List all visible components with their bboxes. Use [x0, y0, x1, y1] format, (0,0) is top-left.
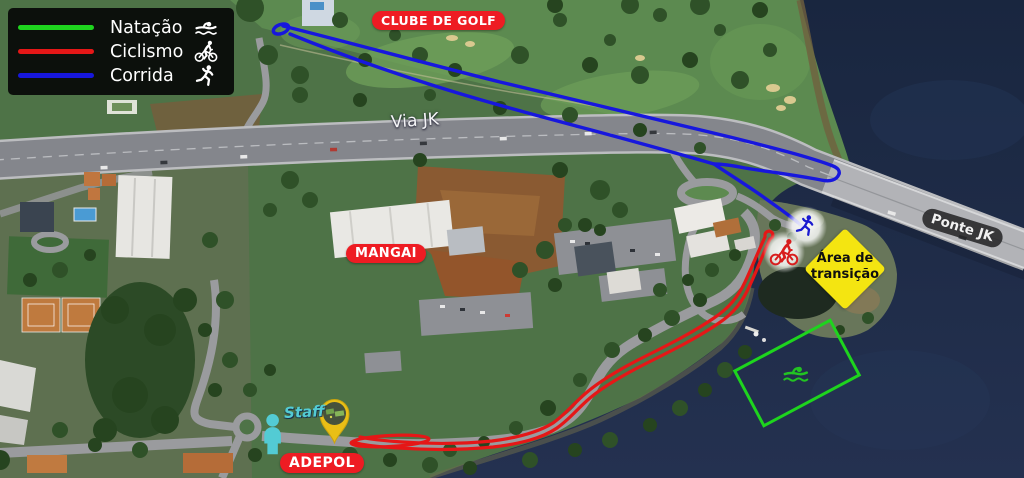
legend-label-natacao: Natação — [110, 18, 194, 38]
legend-label-corrida: Corrida — [110, 66, 194, 86]
legend-panel: Natação Ciclismo Corrida — [8, 8, 234, 95]
interchange-roundabout — [681, 182, 733, 204]
mangai-label: MANGAI — [346, 244, 426, 263]
clube-de-golf-label: CLUBE DE GOLF — [372, 11, 505, 30]
legend-row-ciclismo: Ciclismo — [18, 41, 222, 62]
cyclist-icon — [194, 40, 218, 64]
swim-route-swatch — [18, 25, 94, 30]
run-route-swatch — [18, 73, 94, 78]
transition-label-line1: Área de — [817, 251, 874, 266]
legend-row-corrida: Corrida — [18, 65, 222, 86]
transition-area-label: Área de transição — [799, 251, 891, 284]
legend-label-ciclismo: Ciclismo — [110, 42, 194, 62]
legend-row-natacao: Natação — [18, 17, 222, 38]
swimmer-icon — [194, 16, 218, 40]
runner-icon — [194, 64, 218, 88]
staff-label: Staff — [284, 402, 325, 422]
via-jk-label: Via JK — [390, 109, 439, 132]
adepol-label: ADEPOL — [280, 453, 364, 473]
bike-route-swatch — [18, 49, 94, 54]
triathlon-course-map: CLUBE DE GOLF Via JK MANGAI Ponte JK Áre… — [0, 0, 1024, 478]
transition-label-line2: transição — [811, 267, 879, 282]
